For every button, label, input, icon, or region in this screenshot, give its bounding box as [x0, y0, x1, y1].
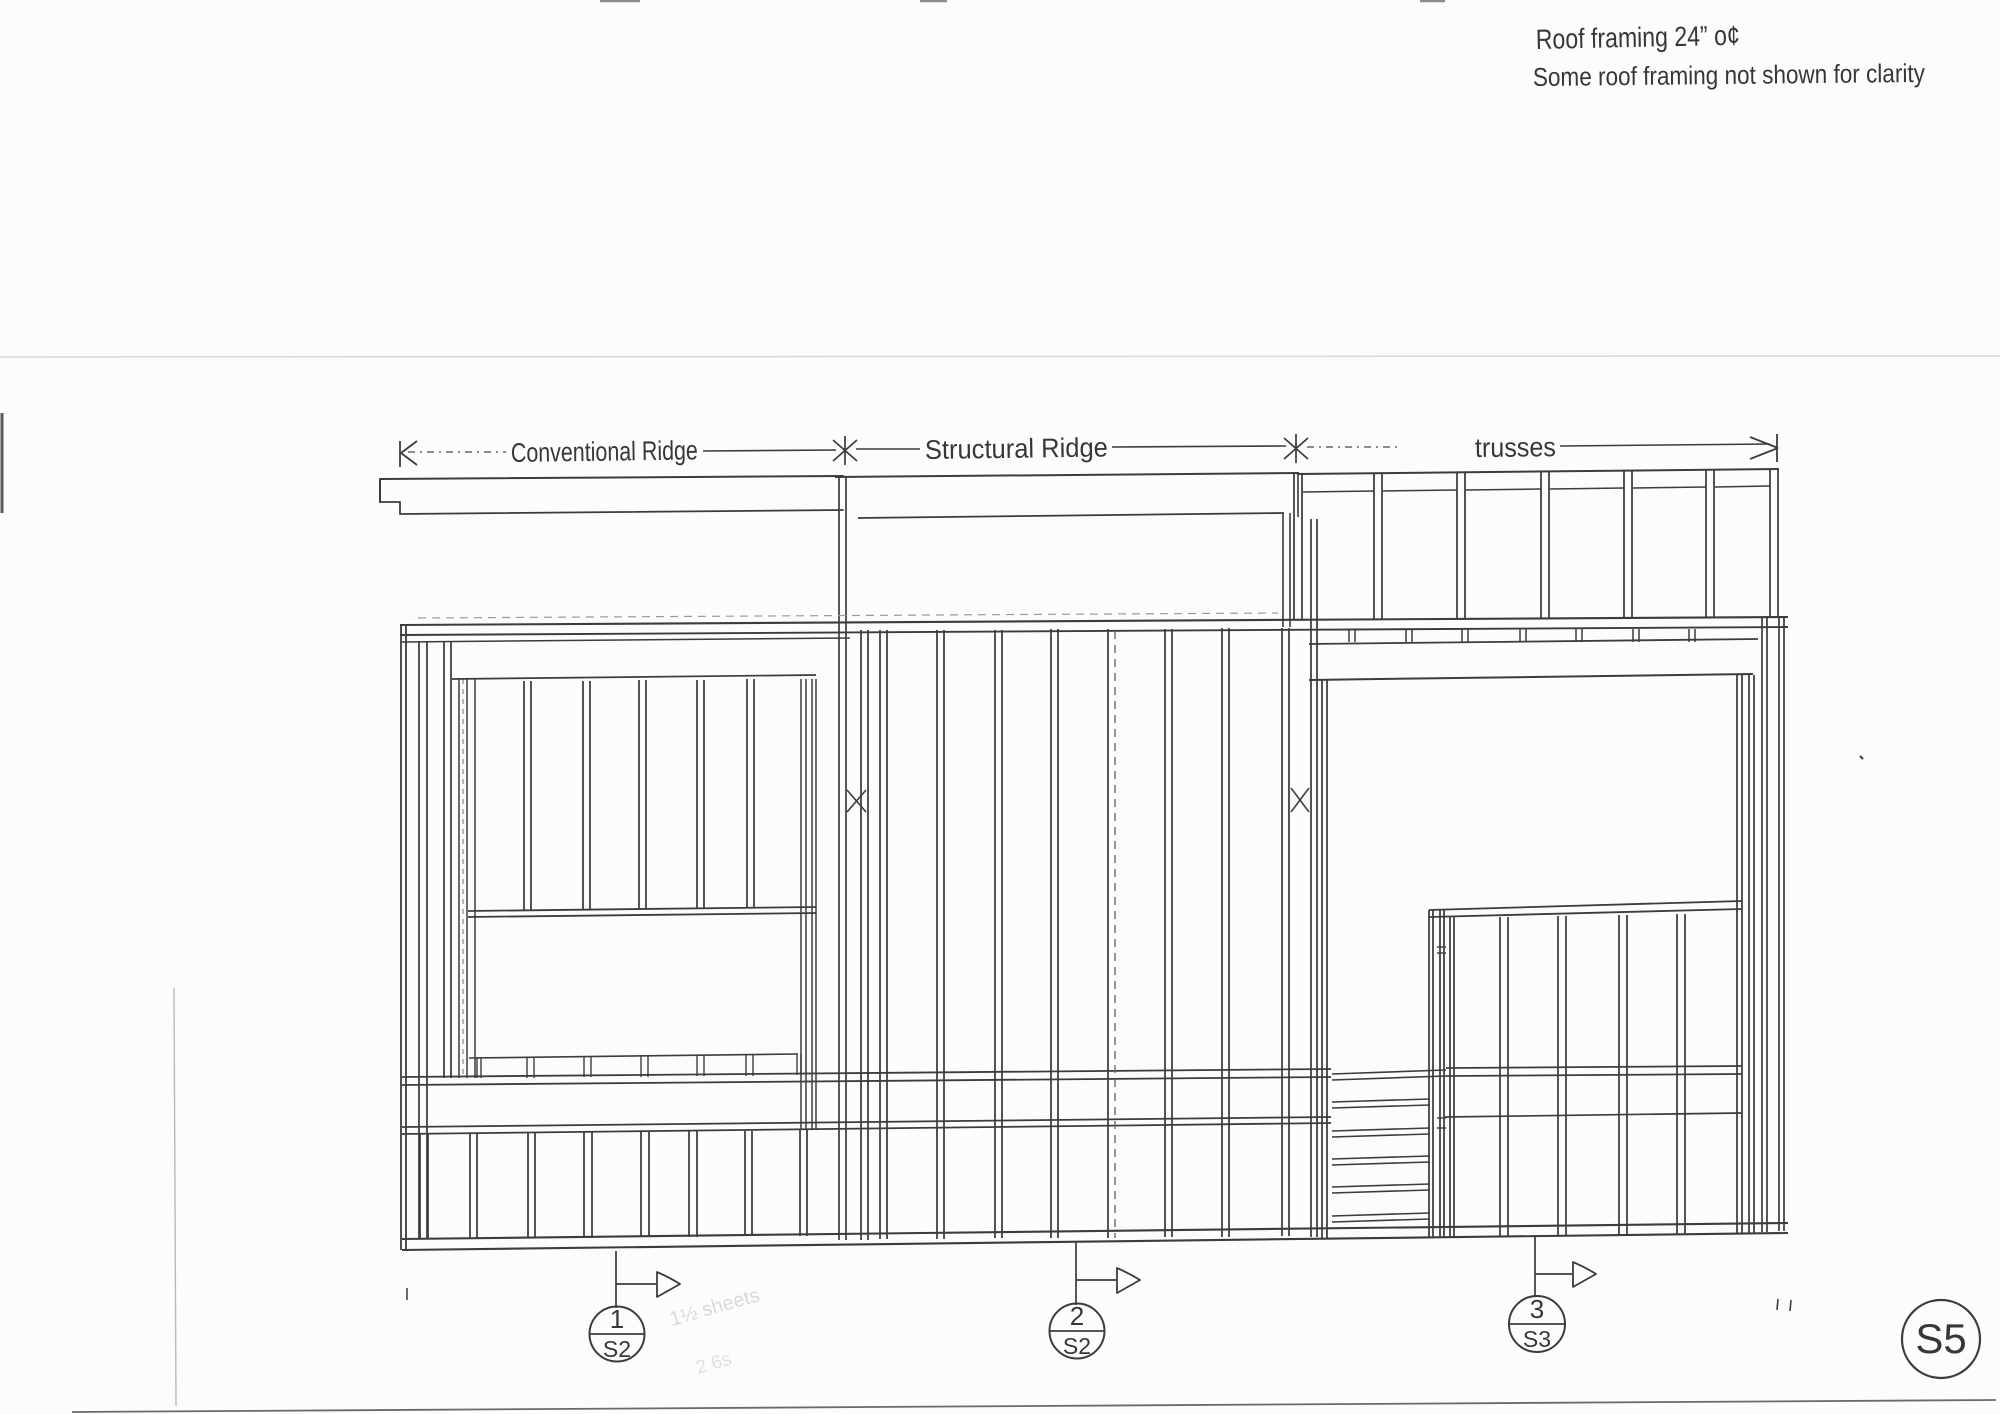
svg-text:trusses: trusses [1475, 432, 1556, 463]
svg-text:2: 2 [1070, 1301, 1084, 1331]
svg-text:Some roof framing not shown fo: Some roof framing not shown for clarity [1533, 58, 1925, 92]
svg-text:S5: S5 [1915, 1315, 1966, 1362]
svg-text:Conventional Ridge: Conventional Ridge [511, 435, 698, 468]
svg-text:3: 3 [1530, 1294, 1544, 1324]
svg-text:Structural Ridge: Structural Ridge [925, 432, 1108, 465]
svg-text:S2: S2 [603, 1336, 631, 1362]
svg-text:1½ sheets: 1½ sheets [667, 1284, 762, 1331]
svg-text:S2: S2 [1063, 1333, 1091, 1359]
svg-text:1: 1 [610, 1304, 624, 1334]
svg-text:2 6s: 2 6s [694, 1349, 734, 1379]
svg-text:Roof framing 24” o¢: Roof framing 24” o¢ [1535, 20, 1740, 55]
svg-text:S3: S3 [1523, 1326, 1551, 1352]
